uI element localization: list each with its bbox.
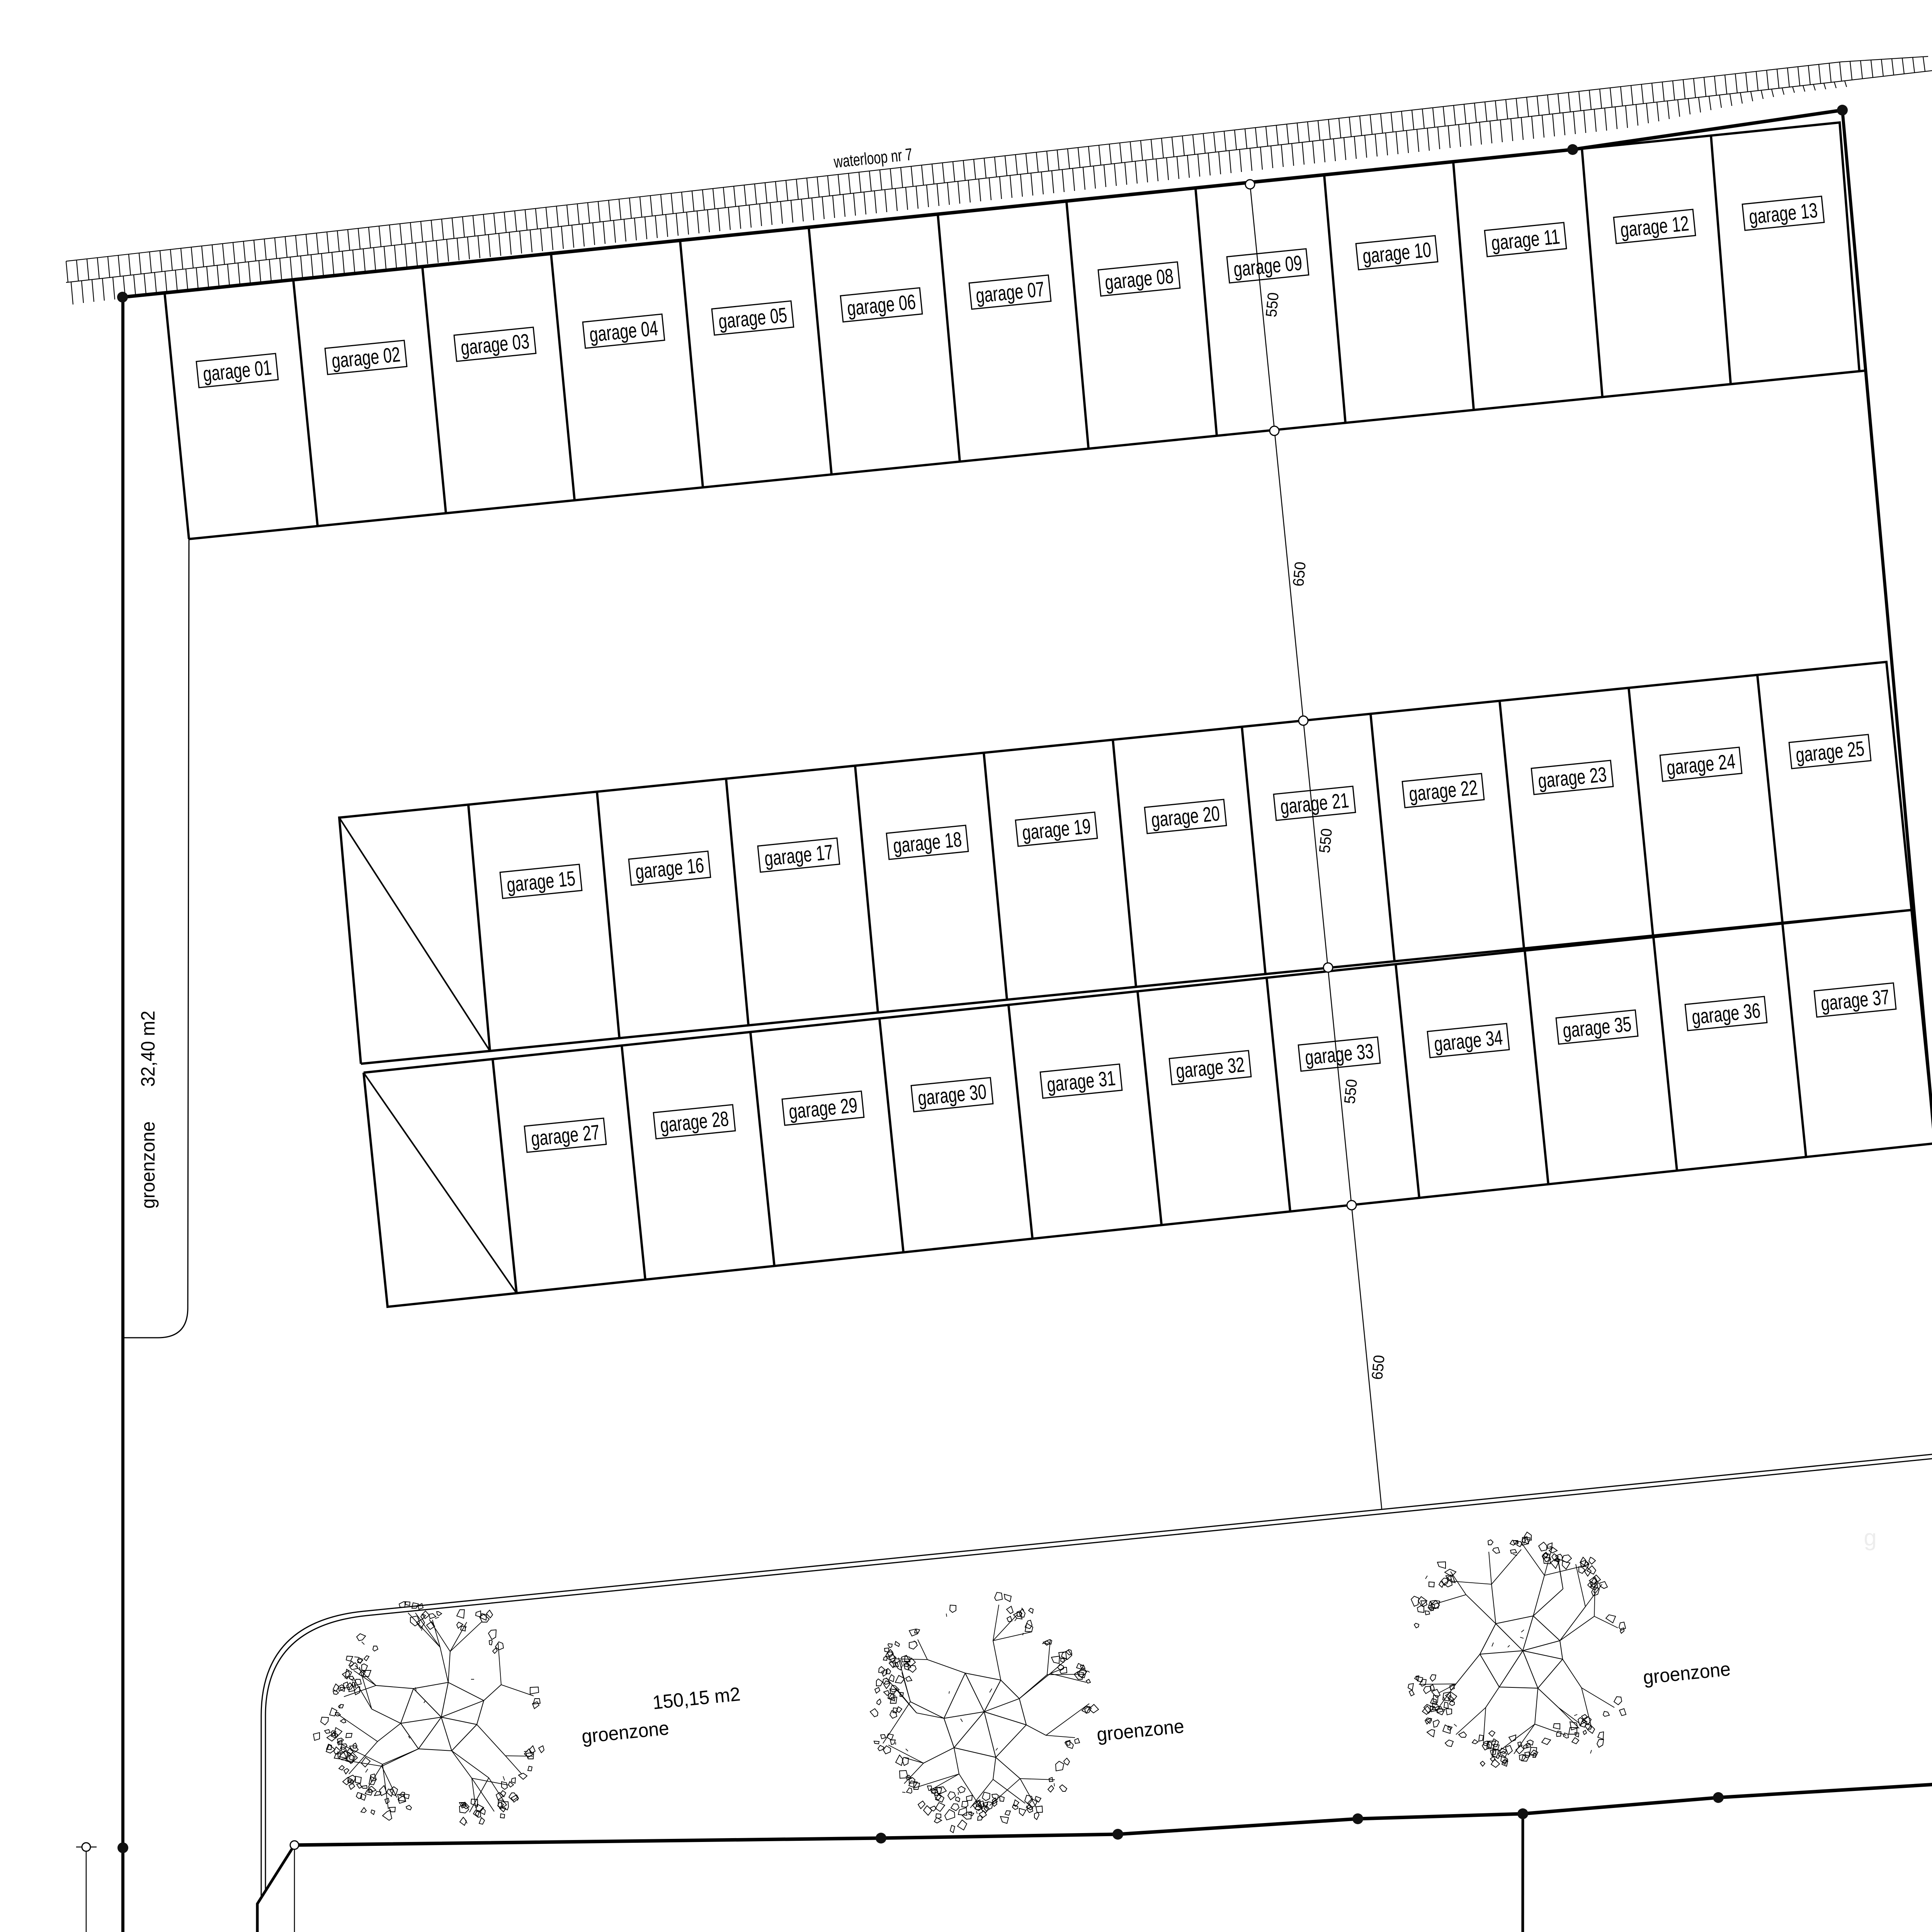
svg-text:32,40 m2: 32,40 m2 (137, 1011, 159, 1087)
svg-text:550: 550 (1263, 292, 1282, 318)
svg-text:650: 650 (1290, 561, 1309, 587)
svg-text:650: 650 (1369, 1354, 1388, 1381)
svg-text:550: 550 (1341, 1078, 1361, 1105)
svg-text:groenzone: groenzone (137, 1121, 159, 1209)
svg-text:550: 550 (1316, 828, 1335, 854)
svg-text:g: g (1864, 1525, 1876, 1551)
